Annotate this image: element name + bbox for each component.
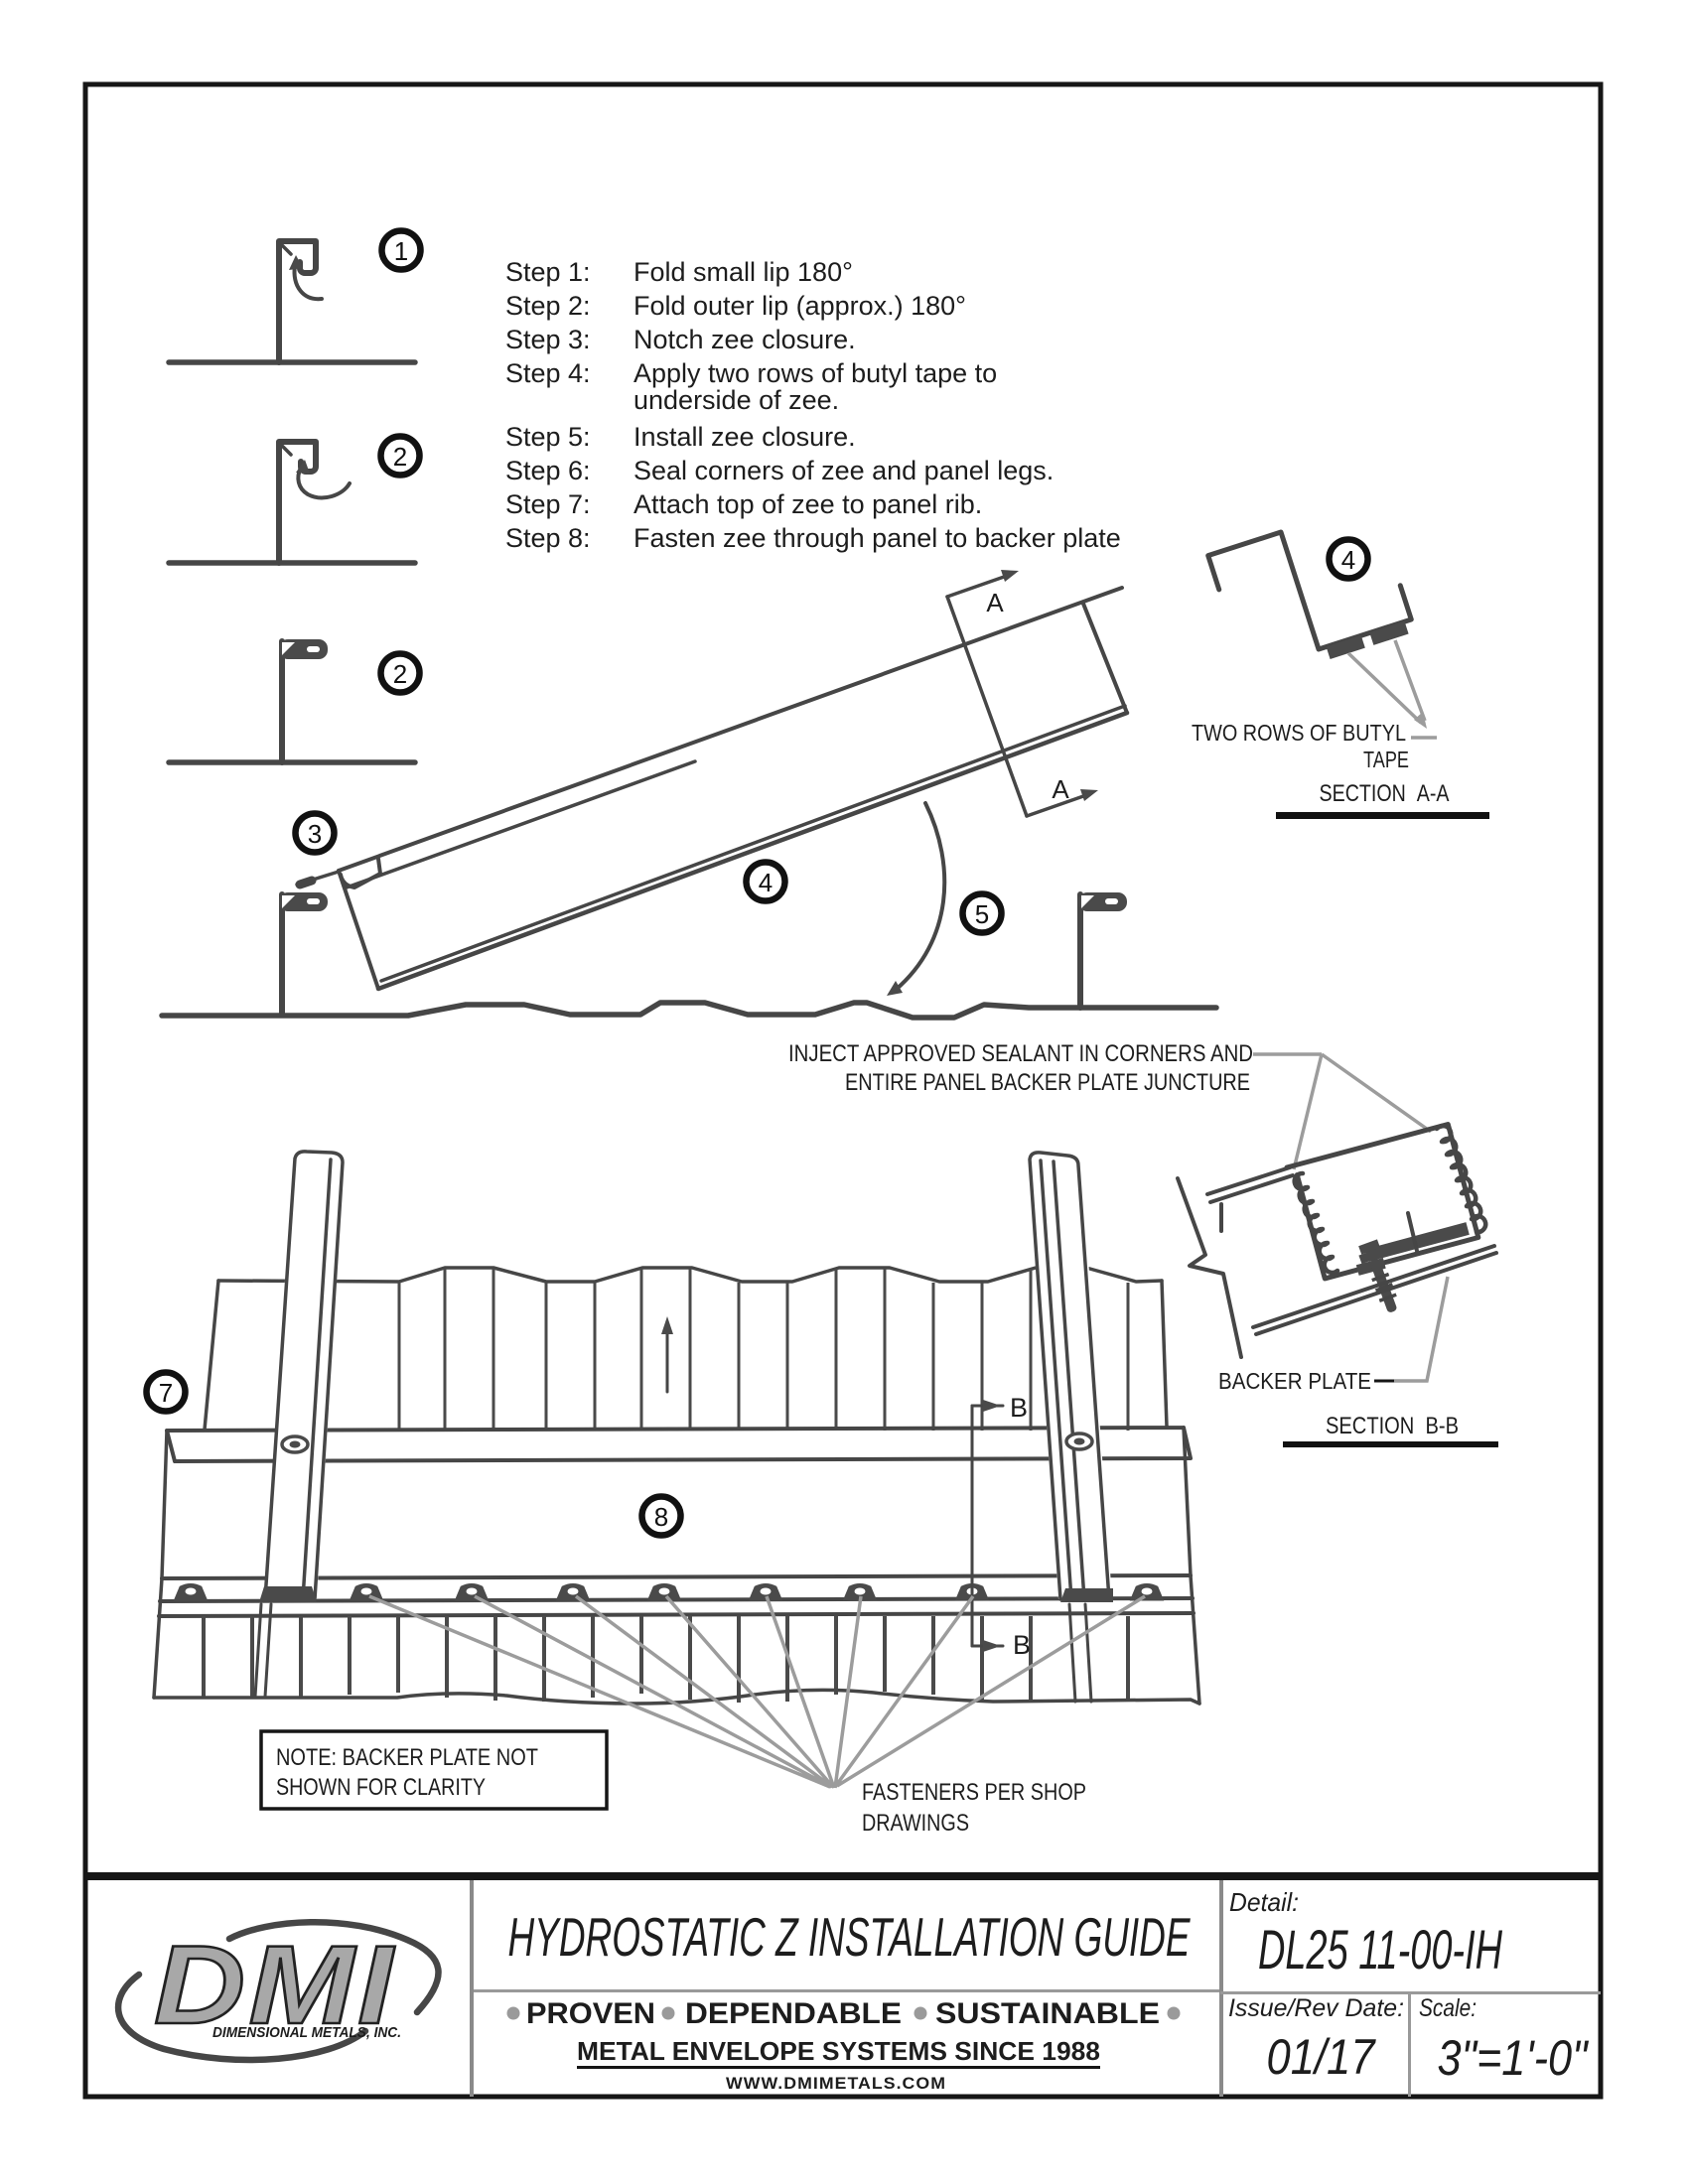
svg-text:01/17: 01/17 [1267,2029,1377,2085]
svg-text:Step 1:: Step 1: [505,257,591,287]
svg-text:Seal corners of zee and panel: Seal corners of zee and panel legs. [633,456,1054,485]
svg-text:5: 5 [975,899,989,929]
svg-text:4: 4 [1341,545,1355,575]
svg-text:2: 2 [393,442,407,472]
svg-text:4: 4 [759,868,773,897]
svg-text:Notch zee closure.: Notch zee closure. [633,325,856,354]
svg-text:DL25 11-00-IH: DL25 11-00-IH [1258,1918,1502,1980]
svg-text:METAL ENVELOPE SYSTEMS SINCE 1: METAL ENVELOPE SYSTEMS SINCE 1988 [577,2036,1100,2066]
svg-text:SHOWN FOR CLARITY: SHOWN FOR CLARITY [276,1774,486,1801]
svg-text:Step 7:: Step 7: [505,489,591,519]
svg-text:Fold small lip 180°: Fold small lip 180° [633,257,853,287]
svg-text:DRAWINGS: DRAWINGS [862,1810,969,1837]
svg-text:NOTE: BACKER PLATE NOT: NOTE: BACKER PLATE NOT [276,1744,538,1771]
svg-text:Detail:: Detail: [1229,1887,1299,1917]
svg-text:1: 1 [394,236,408,266]
svg-text:TAPE: TAPE [1363,747,1409,772]
svg-text:B: B [1010,1393,1028,1423]
svg-text:3: 3 [308,819,322,849]
svg-text:PROVEN: PROVEN [526,1997,655,2030]
svg-text:WWW.DMIMETALS.COM: WWW.DMIMETALS.COM [726,2074,946,2093]
svg-text:A: A [1052,774,1069,804]
svg-text:8: 8 [654,1502,668,1532]
svg-text:SECTION B-B: SECTION B-B [1326,1413,1459,1439]
svg-text:HYDROSTATIC Z INSTALLATION GUI: HYDROSTATIC Z INSTALLATION GUIDE [508,1906,1192,1968]
svg-text:FASTENERS PER SHOP: FASTENERS PER SHOP [862,1779,1086,1806]
svg-text:Fold outer lip (approx.) 180°: Fold outer lip (approx.) 180° [633,291,966,321]
svg-text:Attach top of zee to panel rib: Attach top of zee to panel rib. [633,489,982,519]
svg-text:Install zee closure.: Install zee closure. [633,422,856,452]
svg-text:Step 4:: Step 4: [505,358,591,388]
svg-text:7: 7 [159,1378,173,1408]
svg-text:A: A [986,588,1004,617]
svg-text:TWO ROWS OF BUTYL: TWO ROWS OF BUTYL [1192,720,1406,746]
svg-text:INJECT APPROVED SEALANT IN COR: INJECT APPROVED SEALANT IN CORNERS AND [788,1040,1253,1067]
svg-text:2: 2 [393,659,407,689]
svg-text:SUSTAINABLE: SUSTAINABLE [935,1997,1160,2030]
svg-text:underside of zee.: underside of zee. [633,385,839,415]
svg-text:BACKER PLATE: BACKER PLATE [1218,1368,1371,1394]
svg-text:Step 3:: Step 3: [505,325,591,354]
svg-text:Step 6:: Step 6: [505,456,591,485]
svg-text:Apply two rows of butyl tape t: Apply two rows of butyl tape to [633,358,997,388]
svg-text:3"=1'-0": 3"=1'-0" [1438,2030,1590,2086]
svg-text:B: B [1013,1630,1031,1660]
svg-text:Scale:: Scale: [1419,1994,1477,2022]
svg-text:Step 5:: Step 5: [505,422,591,452]
svg-text:Fasten zee through panel to ba: Fasten zee through panel to backer plate [633,523,1121,553]
svg-text:Issue/Rev Date:: Issue/Rev Date: [1228,1994,1404,2022]
svg-text:DIMENSIONAL METALS, INC.: DIMENSIONAL METALS, INC. [212,2024,401,2041]
svg-text:Step 8:: Step 8: [505,523,591,553]
svg-text:Step 2:: Step 2: [505,291,591,321]
svg-text:ENTIRE PANEL BACKER PLATE JUNC: ENTIRE PANEL BACKER PLATE JUNCTURE [845,1069,1250,1096]
svg-text:DEPENDABLE: DEPENDABLE [685,1997,902,2030]
svg-text:SECTION A-A: SECTION A-A [1320,780,1450,807]
